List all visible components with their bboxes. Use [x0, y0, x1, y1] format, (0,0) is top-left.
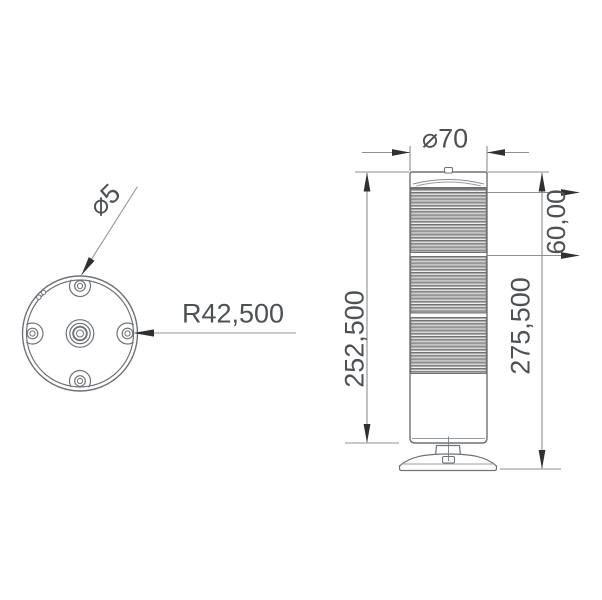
lens-module-1 — [411, 189, 487, 253]
lens-module-3 — [411, 318, 487, 374]
tower-diameter-label: ⌀70 — [422, 126, 468, 153]
arrowhead-down-icon — [364, 424, 371, 443]
side-view — [400, 168, 497, 471]
bolt-circle-radius-label: R42,500 — [182, 301, 284, 328]
bolt-hole-inner — [77, 378, 82, 383]
arrowhead-right-icon — [392, 149, 410, 156]
body-height-label: 252,500 — [342, 290, 369, 388]
arrowhead-left-icon — [487, 149, 505, 156]
hub-center — [77, 330, 84, 337]
dimension-lines — [82, 146, 579, 469]
top-view — [18, 271, 142, 395]
rim-bead — [41, 290, 45, 294]
module-height-label: 60,00 — [543, 189, 569, 254]
total-height-label: 275,500 — [508, 277, 535, 375]
bolt-hole-inner — [125, 331, 130, 336]
lens-module-2 — [411, 257, 487, 314]
arrowhead-down-icon — [539, 450, 546, 469]
bolt-hole-inner — [77, 283, 82, 288]
rim-bead — [37, 295, 41, 299]
center-hub — [66, 320, 94, 348]
arrowhead-up-icon — [364, 173, 371, 192]
cap-top-bump — [445, 168, 453, 174]
technical-drawing-page: ⌀5 R42,500 ⌀70 60,00 252,500 275,500 — [0, 0, 602, 600]
bolt-hole-inner — [30, 331, 35, 336]
arrowhead-diagonal-icon — [82, 257, 95, 275]
